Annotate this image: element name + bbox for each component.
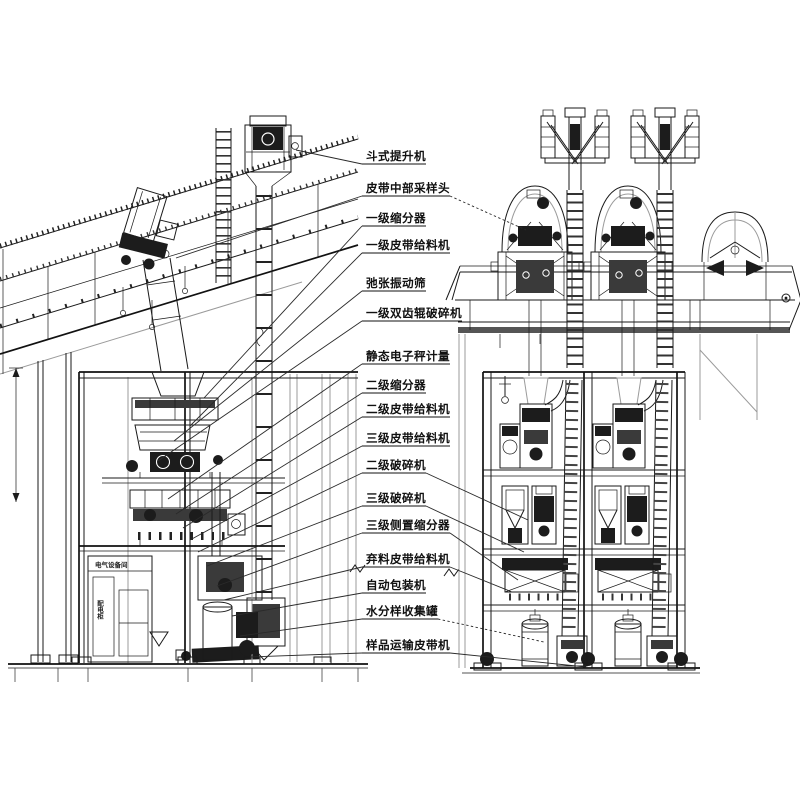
label-primary-belt-feeder: 一级皮带给料机 [366, 238, 450, 252]
label-moisture-sample-tank: 水分样收集罐 [366, 604, 438, 618]
label-bucket-elevator: 斗式提升机 [366, 149, 426, 163]
label-secondary-belt-feeder: 二级皮带给料机 [366, 402, 450, 416]
belt-mid-sampler-side [119, 188, 188, 371]
label-primary-divider: 一级缩分器 [366, 211, 426, 225]
electrical-room-label: 电气设备间 [95, 560, 128, 569]
inclined-conveyor-gallery [0, 137, 358, 502]
left-tower-frame [8, 352, 459, 682]
label-secondary-crusher: 二级破碎机 [366, 458, 426, 472]
side-elevation-view: 电气设备间 配电柜 [0, 116, 459, 682]
label-flip-flow-screen: 弛张振动筛 [366, 276, 426, 290]
equipment-elevation-drawing: 电气设备间 配电柜 [0, 0, 800, 800]
belt-pulley-dome [702, 212, 768, 300]
label-tertiary-crusher: 三级破碎机 [366, 491, 426, 505]
panel-label: 配电柜 [96, 599, 105, 621]
label-tertiary-side-divider: 三级侧置缩分器 [366, 518, 450, 532]
label-belt-mid-sampling-head: 皮带中部采样头 [365, 181, 450, 195]
left-equipment-floor1 [126, 372, 223, 478]
label-secondary-divider: 二级缩分器 [366, 378, 426, 392]
dimension-line [9, 368, 23, 502]
label-reject-belt-feeder: 弃料皮带给料机 [365, 552, 450, 566]
label-primary-double-roll-crusher: 一级双齿辊破碎机 [366, 306, 462, 320]
dimension-ticks [15, 668, 358, 682]
hoist-hook [499, 376, 511, 403]
label-sample-transport-conveyor: 样品运输皮带机 [366, 638, 450, 652]
label-static-electronic-scale: 静态电子秤计量 [366, 349, 450, 363]
drawing-svg: 电气设备间 配电柜 [0, 0, 800, 800]
label-auto-packing-machine: 自动包装机 [366, 578, 426, 592]
small-hopper [150, 632, 168, 646]
label-tertiary-belt-feeder: 三级皮带给料机 [366, 431, 450, 445]
front-elevation-view [446, 108, 800, 673]
